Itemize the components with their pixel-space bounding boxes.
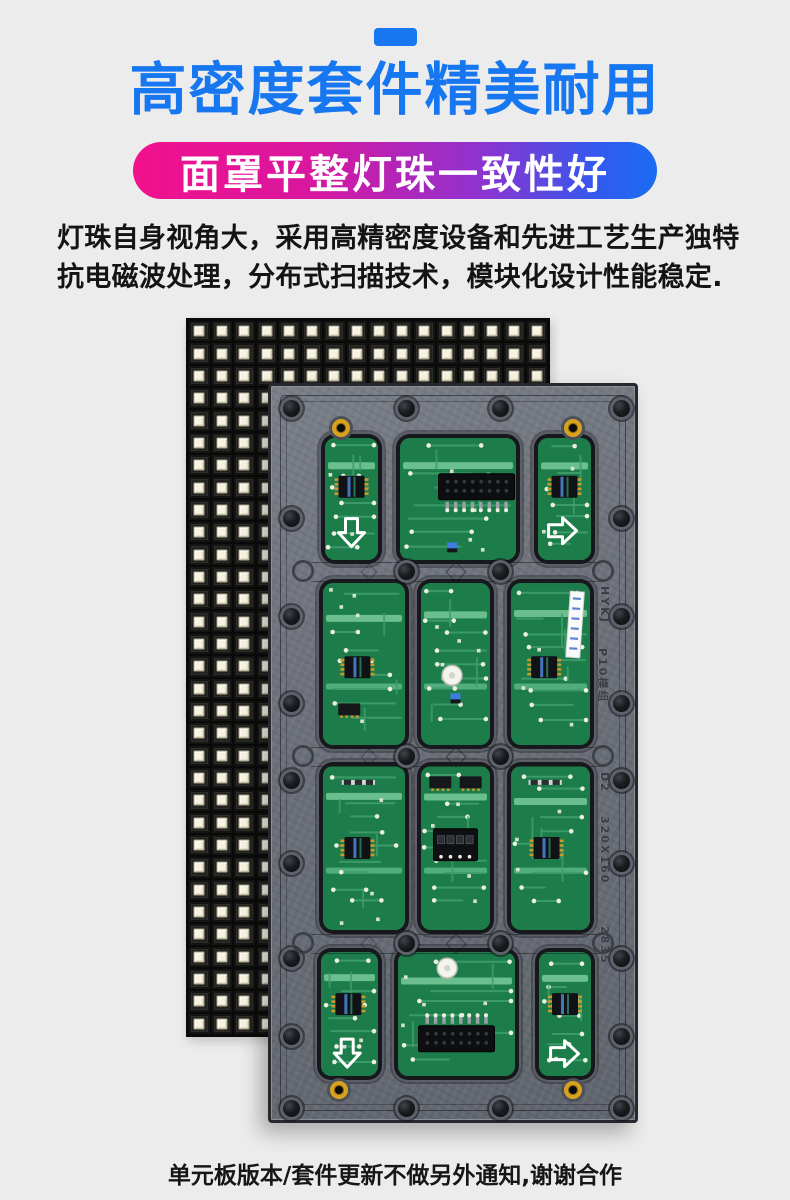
led-pixel <box>234 388 255 408</box>
led-pixel <box>189 567 210 587</box>
screw <box>613 1100 630 1117</box>
led-pixel <box>482 902 503 922</box>
led-chip <box>374 549 385 560</box>
led-pixel <box>302 410 323 430</box>
led-pixel <box>347 589 368 609</box>
led-pixel <box>504 835 525 855</box>
led-pixel <box>527 880 548 900</box>
screw <box>398 748 415 765</box>
led-pixel <box>324 813 345 833</box>
led-pixel <box>392 790 413 810</box>
led-chip <box>419 817 430 828</box>
led-pixel <box>212 611 233 631</box>
led-chip <box>306 840 317 851</box>
screw <box>283 1028 300 1045</box>
led-pixel <box>212 477 233 497</box>
led-pixel <box>459 433 480 453</box>
led-pixel <box>369 455 390 475</box>
led-chip <box>351 683 362 694</box>
led-chip <box>194 549 205 560</box>
led-pixel <box>504 924 525 944</box>
led-pixel <box>257 813 278 833</box>
frame-groove-outline <box>280 395 626 1111</box>
led-chip <box>261 862 272 873</box>
led-chip <box>441 795 452 806</box>
led-chip <box>441 527 452 538</box>
led-chip <box>239 706 250 717</box>
led-chip <box>216 706 227 717</box>
description: 灯珠自身视角大，采用高精密度设备和先进工艺生产独特 抗电磁波处理，分布式扫描技术… <box>57 219 749 297</box>
led-pixel <box>347 880 368 900</box>
led-pixel <box>459 746 480 766</box>
led-chip <box>396 638 407 649</box>
led-chip <box>419 348 430 359</box>
led-chip <box>486 370 497 381</box>
led-pixel <box>347 366 368 386</box>
led-chip <box>261 795 272 806</box>
led-chip <box>306 728 317 739</box>
led-pixel <box>347 969 368 989</box>
led-pixel <box>257 768 278 788</box>
led-chip <box>329 504 340 515</box>
led-pixel <box>257 790 278 810</box>
led-chip <box>194 661 205 672</box>
led-pixel <box>414 924 435 944</box>
led-chip <box>216 661 227 672</box>
led-chip <box>216 773 227 784</box>
led-chip <box>509 393 520 404</box>
led-chip <box>351 594 362 605</box>
frame-hole <box>292 932 314 954</box>
screw <box>613 772 630 789</box>
led-chip <box>419 996 430 1007</box>
led-pixel <box>369 991 390 1011</box>
led-pixel <box>347 522 368 542</box>
led-pixel <box>504 544 525 564</box>
led-pixel <box>527 723 548 743</box>
led-chip <box>374 884 385 895</box>
led-pixel <box>414 567 435 587</box>
led-chip <box>261 460 272 471</box>
led-chip <box>239 326 250 337</box>
led-pixel <box>527 410 548 430</box>
led-chip <box>509 437 520 448</box>
led-chip <box>464 415 475 426</box>
led-chip <box>509 706 520 717</box>
led-chip <box>486 527 497 538</box>
led-pixel <box>459 544 480 564</box>
led-chip <box>396 527 407 538</box>
led-chip <box>464 571 475 582</box>
led-chip <box>351 661 362 672</box>
led-pixel <box>302 723 323 743</box>
led-chip <box>239 638 250 649</box>
led-chip <box>464 661 475 672</box>
led-pixel <box>392 768 413 788</box>
led-chip <box>306 661 317 672</box>
led-pixel <box>257 388 278 408</box>
led-pixel <box>482 321 503 341</box>
led-chip <box>396 415 407 426</box>
led-pixel <box>482 656 503 676</box>
led-pixel <box>392 924 413 944</box>
led-pixel <box>302 857 323 877</box>
led-chip <box>329 974 340 985</box>
led-pixel <box>414 321 435 341</box>
led-pixel <box>527 500 548 520</box>
led-pixel <box>324 679 345 699</box>
screw <box>283 400 300 417</box>
led-chip <box>396 817 407 828</box>
led-pixel <box>279 768 300 788</box>
led-chip <box>464 638 475 649</box>
led-pixel <box>324 500 345 520</box>
led-chip <box>239 795 250 806</box>
footer-note: 单元板版本/套件更新不做另外通知,谢谢合作 <box>0 1156 790 1190</box>
led-pixel <box>189 1014 210 1034</box>
led-chip <box>396 594 407 605</box>
led-pixel <box>347 410 368 430</box>
led-chip <box>531 862 542 873</box>
led-pixel <box>369 1014 390 1034</box>
led-pixel <box>437 343 458 363</box>
led-chip <box>284 951 295 962</box>
led-pixel <box>257 969 278 989</box>
led-chip <box>531 817 542 828</box>
led-pixel <box>347 634 368 654</box>
led-pixel <box>369 343 390 363</box>
led-pixel <box>527 701 548 721</box>
led-chip <box>396 728 407 739</box>
led-pixel <box>437 723 458 743</box>
led-pixel <box>234 746 255 766</box>
led-chip <box>441 773 452 784</box>
led-pixel <box>414 857 435 877</box>
led-pixel <box>392 410 413 430</box>
led-pixel <box>212 343 233 363</box>
led-chip <box>351 907 362 918</box>
description-line1: 灯珠自身视角大，采用高精密度设备和先进工艺生产独特 <box>57 223 740 254</box>
led-chip <box>396 482 407 493</box>
led-chip <box>216 951 227 962</box>
led-chip <box>284 437 295 448</box>
led-pixel <box>212 813 233 833</box>
led-pixel <box>369 567 390 587</box>
led-pixel <box>437 388 458 408</box>
led-pixel <box>234 455 255 475</box>
led-pixel <box>212 544 233 564</box>
led-pixel <box>234 701 255 721</box>
led-pixel <box>324 790 345 810</box>
frame-groove-outline <box>286 401 620 1105</box>
led-pixel <box>189 343 210 363</box>
led-pixel <box>414 634 435 654</box>
led-chip <box>284 594 295 605</box>
led-pixel <box>302 813 323 833</box>
led-pixel <box>459 388 480 408</box>
led-chip <box>509 773 520 784</box>
led-pixel <box>414 343 435 363</box>
led-chip <box>284 527 295 538</box>
led-chip <box>441 348 452 359</box>
led-chip <box>486 638 497 649</box>
led-pixel <box>392 589 413 609</box>
led-pixel <box>347 768 368 788</box>
led-chip <box>216 884 227 895</box>
led-pixel <box>459 611 480 631</box>
led-pixel <box>234 589 255 609</box>
led-pixel <box>459 969 480 989</box>
led-chip <box>464 437 475 448</box>
led-pixel <box>279 634 300 654</box>
led-pixel <box>459 768 480 788</box>
led-pixel <box>279 835 300 855</box>
led-chip <box>374 661 385 672</box>
led-chip <box>441 571 452 582</box>
led-chip <box>261 817 272 828</box>
led-chip <box>464 750 475 761</box>
led-pixel <box>482 880 503 900</box>
led-chip <box>441 326 452 337</box>
led-pixel <box>234 679 255 699</box>
led-chip <box>329 907 340 918</box>
screw <box>283 1100 300 1117</box>
led-chip <box>284 393 295 404</box>
led-chip <box>419 638 430 649</box>
led-chip <box>396 348 407 359</box>
led-chip <box>261 326 272 337</box>
led-pixel <box>279 880 300 900</box>
led-chip <box>441 817 452 828</box>
led-chip <box>261 638 272 649</box>
led-chip <box>509 929 520 940</box>
led-pixel <box>482 522 503 542</box>
led-chip <box>396 1018 407 1029</box>
led-pixel <box>324 835 345 855</box>
led-chip <box>396 795 407 806</box>
led-pixel <box>482 343 503 363</box>
led-chip <box>306 884 317 895</box>
led-chip <box>329 393 340 404</box>
mounting-hole-gold <box>332 419 350 437</box>
led-pixel <box>189 924 210 944</box>
led-chip <box>194 929 205 940</box>
led-chip <box>239 437 250 448</box>
led-pixel <box>234 991 255 1011</box>
led-pixel <box>324 723 345 743</box>
led-pixel <box>504 634 525 654</box>
led-chip <box>194 996 205 1007</box>
led-chip <box>509 661 520 672</box>
led-chip <box>329 951 340 962</box>
led-chip <box>509 415 520 426</box>
led-chip <box>306 437 317 448</box>
led-pixel <box>459 880 480 900</box>
led-pixel <box>189 455 210 475</box>
led-chip <box>306 862 317 873</box>
led-pixel <box>189 723 210 743</box>
led-chip <box>419 862 430 873</box>
led-chip <box>374 460 385 471</box>
screw <box>283 772 300 789</box>
pcb-window <box>398 952 515 1076</box>
led-pixel <box>459 679 480 699</box>
led-pixel <box>369 880 390 900</box>
led-pixel <box>257 611 278 631</box>
led-pixel <box>504 969 525 989</box>
led-pixel <box>302 433 323 453</box>
led-chip <box>441 504 452 515</box>
led-chip <box>306 527 317 538</box>
led-chip <box>441 996 452 1007</box>
led-pixel <box>212 902 233 922</box>
led-pixel <box>414 947 435 967</box>
led-pixel <box>279 679 300 699</box>
led-chip <box>216 907 227 918</box>
led-chip <box>486 706 497 717</box>
led-chip <box>329 594 340 605</box>
led-chip <box>374 974 385 985</box>
led-chip <box>351 817 362 828</box>
led-pixel <box>302 366 323 386</box>
led-chip <box>464 728 475 739</box>
led-pixel <box>527 768 548 788</box>
led-chip <box>419 728 430 739</box>
led-pixel <box>234 567 255 587</box>
led-pixel <box>527 947 548 967</box>
led-pixel <box>189 410 210 430</box>
led-chip <box>486 393 497 404</box>
led-chip <box>396 996 407 1007</box>
led-chip <box>464 616 475 627</box>
led-pixel <box>324 567 345 587</box>
led-chip <box>441 907 452 918</box>
led-pixel <box>212 679 233 699</box>
led-pixel <box>234 500 255 520</box>
led-pixel <box>212 857 233 877</box>
led-pixel <box>369 947 390 967</box>
led-pixel <box>279 410 300 430</box>
led-chip <box>284 638 295 649</box>
led-pixel <box>324 768 345 788</box>
led-pixel <box>302 567 323 587</box>
led-chip <box>486 460 497 471</box>
led-pixel <box>504 321 525 341</box>
led-pixel <box>459 947 480 967</box>
led-chip <box>486 571 497 582</box>
led-pixel <box>212 947 233 967</box>
led-chip <box>306 482 317 493</box>
led-pixel <box>482 544 503 564</box>
led-pixel <box>414 410 435 430</box>
led-pixel <box>437 500 458 520</box>
led-pixel <box>459 589 480 609</box>
led-pixel <box>302 947 323 967</box>
led-chip <box>351 415 362 426</box>
led-chip <box>216 326 227 337</box>
led-chip <box>216 974 227 985</box>
led-chip <box>486 929 497 940</box>
led-pixel <box>189 366 210 386</box>
led-pixel <box>234 634 255 654</box>
led-chip <box>374 370 385 381</box>
led-pixel <box>437 835 458 855</box>
led-chip <box>216 415 227 426</box>
led-pixel <box>212 969 233 989</box>
led-chip <box>306 750 317 761</box>
led-chip <box>306 706 317 717</box>
led-pixel <box>369 768 390 788</box>
led-pixel <box>234 902 255 922</box>
led-pixel <box>504 880 525 900</box>
led-chip <box>351 728 362 739</box>
led-pixel <box>279 969 300 989</box>
led-chip <box>419 460 430 471</box>
led-chip <box>329 884 340 895</box>
led-pixel <box>324 589 345 609</box>
led-pixel <box>527 634 548 654</box>
led-pixel <box>482 366 503 386</box>
led-pixel <box>189 880 210 900</box>
led-pixel <box>527 455 548 475</box>
led-pixel <box>302 835 323 855</box>
led-chip <box>531 616 542 627</box>
led-chip <box>509 974 520 985</box>
led-pixel <box>234 343 255 363</box>
led-pixel <box>324 544 345 564</box>
led-chip <box>284 571 295 582</box>
led-pixel <box>257 477 278 497</box>
screw <box>492 1100 509 1117</box>
led-chip <box>441 549 452 560</box>
led-chip <box>194 460 205 471</box>
led-chip <box>306 393 317 404</box>
led-chip <box>194 415 205 426</box>
screw <box>283 695 300 712</box>
led-chip <box>531 393 542 404</box>
led-chip <box>284 795 295 806</box>
led-pixel <box>302 388 323 408</box>
frame-groove <box>311 747 601 767</box>
led-chip <box>329 638 340 649</box>
led-pixel <box>324 991 345 1011</box>
led-pixel <box>437 1014 458 1034</box>
led-chip <box>216 817 227 828</box>
led-pixel <box>482 813 503 833</box>
led-chip <box>239 929 250 940</box>
pcb-window <box>511 583 590 745</box>
led-chip <box>464 393 475 404</box>
led-chip <box>284 817 295 828</box>
led-pixel <box>437 321 458 341</box>
led-pixel <box>527 544 548 564</box>
led-chip <box>306 1018 317 1029</box>
led-chip <box>531 415 542 426</box>
led-pixel <box>212 1014 233 1034</box>
led-chip <box>284 728 295 739</box>
led-chip <box>284 482 295 493</box>
led-pixel <box>482 611 503 631</box>
led-chip <box>441 460 452 471</box>
pcb-window <box>421 583 490 745</box>
led-chip <box>306 683 317 694</box>
led-pixel <box>504 701 525 721</box>
led-pixel <box>279 924 300 944</box>
led-chip <box>396 884 407 895</box>
mounting-hole-gold <box>564 419 582 437</box>
led-pixel <box>257 433 278 453</box>
led-pixel <box>437 522 458 542</box>
